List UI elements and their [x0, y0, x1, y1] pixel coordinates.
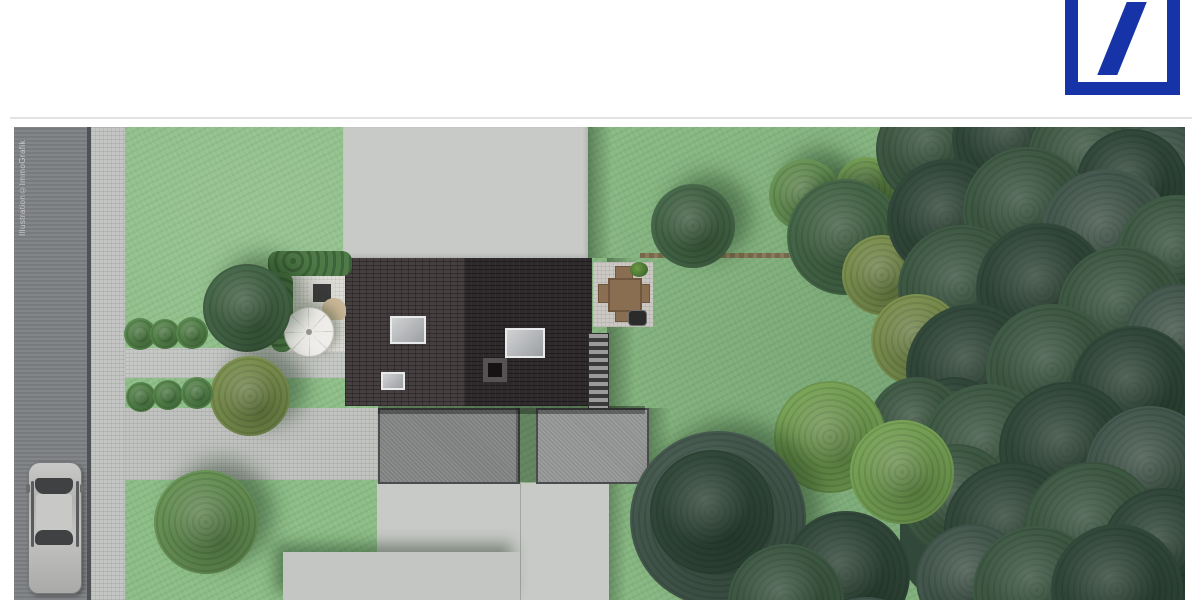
parked-car [28, 462, 82, 594]
deutsche-bank-logo-icon [1065, 0, 1180, 95]
logo-inner-square [1078, 0, 1167, 82]
skylight [381, 372, 405, 390]
chimney-flue [488, 363, 502, 377]
logo-slash [1097, 2, 1146, 75]
shadow [588, 127, 612, 258]
watermark-credit: Illustration©ImmoGrafik [16, 133, 32, 243]
car-side-window [31, 481, 34, 547]
parasol-hub [306, 329, 312, 335]
exterior-stairs [588, 333, 609, 409]
car-rear-window [35, 530, 73, 545]
forest [900, 127, 1185, 600]
garage-slab-right [536, 408, 649, 484]
skylight [505, 328, 545, 358]
dirt-path [640, 253, 872, 258]
shadow [609, 483, 627, 600]
car-windshield [35, 478, 73, 494]
car-side-window [76, 481, 79, 547]
car-mirror [80, 484, 84, 493]
sidewalk [91, 127, 125, 600]
dining-table [608, 278, 642, 312]
chimney [483, 358, 507, 382]
car-roof [36, 494, 72, 530]
shadow [516, 408, 536, 482]
neighbor-building-north [343, 127, 588, 258]
potted-plant [630, 262, 648, 277]
divider-line [10, 117, 1192, 119]
roof-seam [520, 483, 521, 600]
driveway [125, 408, 378, 480]
car-mirror [26, 484, 30, 493]
skylight [390, 316, 426, 344]
neighbor-building-southwest [283, 552, 520, 600]
parasol [284, 307, 334, 357]
garage-slab-left [378, 408, 520, 484]
grill [628, 310, 647, 326]
site-plan-illustration: Illustration©ImmoGrafik [14, 127, 1185, 600]
